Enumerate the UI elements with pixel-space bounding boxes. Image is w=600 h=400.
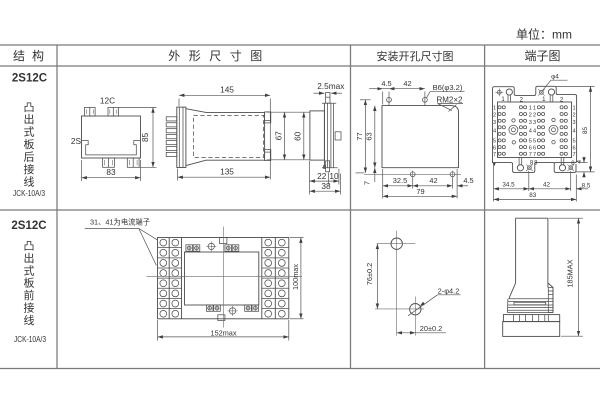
svg-text:185MAX: 185MAX: [566, 259, 575, 287]
svg-text:135: 135: [220, 167, 234, 177]
svg-text:152max: 152max: [211, 328, 237, 337]
svg-text:34.5: 34.5: [502, 182, 515, 189]
svg-text:单位：mm: 单位：mm: [516, 27, 572, 42]
svg-text:42: 42: [403, 79, 411, 88]
svg-text:RM2×2: RM2×2: [436, 95, 463, 104]
svg-text:2: 2: [493, 112, 496, 118]
svg-text:式: 式: [24, 264, 35, 277]
svg-text:83: 83: [106, 167, 116, 177]
svg-text:7: 7: [572, 152, 575, 158]
svg-text:φ4: φ4: [551, 74, 559, 81]
svg-text:2: 2: [529, 112, 532, 118]
svg-text:4: 4: [493, 129, 496, 135]
svg-text:1: 1: [572, 106, 575, 112]
svg-text:板: 板: [24, 276, 35, 290]
svg-text:42: 42: [543, 182, 551, 189]
svg-text:20±0.2: 20±0.2: [420, 324, 443, 333]
svg-text:1: 1: [533, 106, 536, 112]
svg-text:接: 接: [24, 302, 35, 315]
svg-text:3: 3: [533, 120, 536, 126]
svg-text:3: 3: [493, 120, 496, 126]
svg-text:凸: 凸: [24, 241, 35, 253]
svg-text:8.5: 8.5: [582, 182, 591, 189]
svg-text:85: 85: [140, 132, 150, 142]
svg-text:4: 4: [576, 159, 583, 163]
svg-text:1: 1: [529, 106, 532, 112]
svg-text:6: 6: [533, 145, 536, 151]
svg-text:2-φ4.2: 2-φ4.2: [438, 287, 460, 296]
svg-text:8: 8: [534, 161, 538, 167]
svg-text:板: 板: [24, 137, 35, 151]
svg-text:10: 10: [329, 171, 339, 181]
svg-text:凸: 凸: [24, 102, 35, 114]
svg-text:2: 2: [533, 112, 536, 118]
svg-text:外形尺寸图: 外形尺寸图: [168, 49, 271, 63]
svg-text:42: 42: [429, 176, 437, 185]
svg-text:3: 3: [529, 120, 532, 126]
svg-text:安装开孔尺寸图: 安装开孔尺寸图: [377, 49, 454, 63]
svg-text:85: 85: [582, 127, 589, 135]
svg-text:7: 7: [533, 152, 536, 158]
svg-text:JCK-10A/3: JCK-10A/3: [13, 188, 45, 198]
svg-text:前: 前: [24, 288, 35, 302]
svg-text:2: 2: [520, 98, 524, 104]
svg-text:77: 77: [355, 132, 364, 140]
svg-text:4: 4: [533, 129, 536, 135]
svg-text:4: 4: [572, 129, 575, 135]
svg-text:5: 5: [572, 139, 575, 145]
svg-text:2S: 2S: [71, 136, 82, 146]
svg-text:3: 3: [572, 120, 575, 126]
svg-text:67: 67: [273, 131, 283, 141]
svg-text:60: 60: [292, 131, 302, 141]
svg-text:B6(φ3.2): B6(φ3.2): [433, 83, 463, 92]
svg-text:2S12C: 2S12C: [12, 73, 47, 85]
svg-text:5: 5: [493, 139, 496, 145]
svg-text:式: 式: [24, 126, 35, 139]
svg-text:5: 5: [533, 139, 536, 145]
svg-text:线: 线: [24, 313, 35, 327]
svg-text:结构: 结构: [13, 48, 51, 63]
svg-text:6: 6: [572, 145, 575, 151]
svg-text:8: 8: [571, 161, 575, 167]
svg-text:端子图: 端子图: [524, 49, 560, 63]
svg-text:76±0.2: 76±0.2: [365, 263, 374, 286]
svg-text:7: 7: [493, 152, 496, 158]
svg-text:2: 2: [560, 98, 564, 104]
svg-text:100max: 100max: [291, 264, 300, 290]
svg-text:63: 63: [364, 132, 373, 140]
svg-text:1: 1: [493, 106, 496, 112]
svg-text:22: 22: [317, 171, 327, 181]
svg-text:38: 38: [321, 181, 331, 191]
svg-text:4: 4: [529, 129, 532, 135]
svg-text:12C: 12C: [100, 96, 115, 106]
svg-text:6: 6: [493, 145, 496, 151]
svg-text:线: 线: [24, 175, 35, 189]
svg-text:5: 5: [529, 139, 532, 145]
svg-text:83: 83: [529, 192, 537, 199]
svg-text:7: 7: [363, 181, 372, 185]
svg-text:7: 7: [529, 152, 532, 158]
svg-text:出: 出: [24, 251, 35, 265]
svg-text:2.5max: 2.5max: [317, 81, 345, 91]
svg-text:后: 后: [24, 151, 35, 164]
svg-text:接: 接: [24, 163, 35, 176]
svg-text:2: 2: [572, 112, 575, 118]
svg-text:79: 79: [416, 187, 424, 196]
svg-text:4.5: 4.5: [381, 79, 391, 88]
svg-text:31、41为电流端子: 31、41为电流端子: [90, 217, 150, 226]
svg-text:32.5: 32.5: [393, 176, 407, 185]
svg-text:145: 145: [220, 85, 234, 95]
svg-text:JCK-10A/3: JCK-10A/3: [14, 334, 46, 344]
svg-text:2S12C: 2S12C: [11, 220, 46, 232]
svg-text:4.5: 4.5: [463, 176, 473, 185]
svg-text:出: 出: [24, 112, 35, 126]
svg-text:6: 6: [529, 145, 532, 151]
